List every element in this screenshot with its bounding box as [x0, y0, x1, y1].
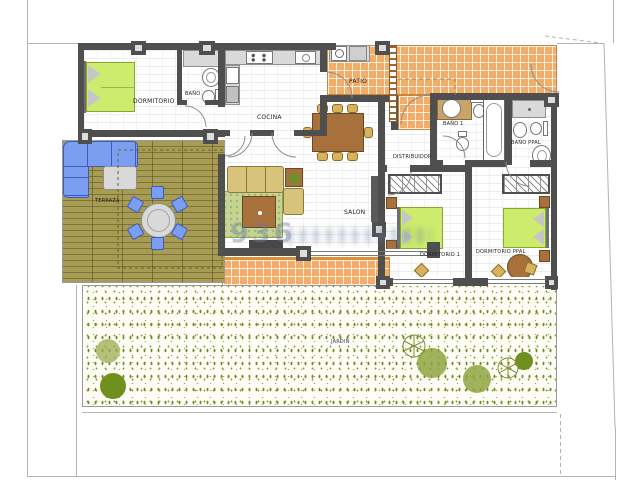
column: [545, 276, 558, 289]
wall: [465, 165, 472, 283]
wall: [205, 100, 223, 105]
room-label-distribuidor: DISTRIBUIDOR: [393, 154, 432, 161]
pergola-beam: [389, 45, 397, 122]
bush-icon: [463, 365, 491, 393]
double-bed: [503, 208, 546, 248]
side-table: [285, 168, 303, 187]
wall: [78, 43, 84, 137]
chair: [332, 104, 343, 113]
column: [376, 276, 390, 289]
wall: [430, 93, 557, 100]
wall: [218, 154, 225, 256]
wall: [453, 278, 488, 286]
appliance: [349, 46, 367, 61]
bidet-icon: [456, 137, 469, 151]
column: [544, 93, 559, 107]
room-label-dormitorio: DORMITORIO: [133, 98, 175, 105]
wall: [551, 95, 557, 290]
toilet-tank: [543, 121, 548, 136]
wall: [177, 48, 182, 104]
wall: [320, 95, 398, 102]
table-dot: [258, 211, 262, 215]
bush-icon: [515, 352, 533, 370]
wall: [385, 165, 387, 172]
bush-icon: [100, 373, 126, 399]
column: [203, 129, 218, 144]
wall: [505, 95, 512, 165]
room-label-banyo1: BAÑO 1: [443, 121, 464, 128]
plant-icon: [289, 173, 300, 184]
sink-icon: [442, 99, 461, 118]
patio-extension-tiles: [398, 95, 433, 130]
chair: [332, 152, 343, 161]
room-label-banyo: BAÑO: [185, 91, 200, 98]
bidet-icon: [513, 122, 527, 138]
chair: [151, 237, 164, 250]
bathtub-icon: [483, 99, 505, 161]
wall: [320, 43, 327, 72]
room-label-dormitorio-ppal: DORMITORIO PPAL: [476, 249, 525, 256]
wall: [225, 130, 230, 136]
sink-bowl: [206, 72, 216, 83]
nightstand: [539, 250, 550, 262]
wall: [218, 43, 225, 107]
pillow: [533, 211, 544, 227]
kitchen-sink: [295, 51, 316, 64]
watermark-text: 936: [230, 218, 295, 249]
bush-icon: [417, 348, 447, 378]
window-glazing: [488, 277, 546, 286]
nightstand: [386, 197, 397, 209]
column: [131, 41, 146, 55]
pillow: [402, 210, 413, 226]
pillow: [88, 89, 101, 107]
column: [199, 41, 215, 55]
kitchen-sink: [226, 67, 239, 84]
closet: [388, 174, 442, 194]
wall: [218, 130, 225, 136]
wall: [218, 248, 298, 256]
room-label-cocina: COCINA: [257, 114, 282, 121]
sink-bowl: [302, 54, 310, 62]
low-table: [103, 166, 137, 190]
corner-sofa: [63, 141, 138, 167]
stove-icon: [246, 51, 273, 64]
sofa: [227, 166, 284, 193]
room-label-salon: SALON: [344, 209, 365, 216]
wall: [410, 165, 470, 172]
room-label-dormitorio1: DORMITORIO 1: [420, 252, 460, 259]
watermark-smudge: [287, 228, 432, 243]
bed-headboard: [546, 208, 549, 248]
pillow: [88, 65, 101, 83]
drain-dot: [528, 108, 531, 111]
chair: [364, 127, 373, 138]
column: [78, 129, 92, 144]
window-glazing: [311, 249, 427, 257]
room-label-patio: PATIO: [349, 78, 367, 85]
window-glazing: [393, 277, 453, 286]
wall: [177, 100, 187, 105]
fridge-icon: [226, 86, 239, 103]
double-bed: [86, 62, 135, 112]
pillow: [533, 229, 544, 245]
wall: [320, 98, 327, 136]
armchair: [283, 188, 304, 215]
wall: [430, 95, 437, 162]
washer-door: [335, 49, 344, 58]
chair: [347, 152, 358, 161]
chair: [347, 104, 358, 113]
chair: [317, 152, 328, 161]
chair: [151, 186, 164, 199]
tub-inner: [486, 103, 502, 157]
toilet-icon: [530, 122, 542, 135]
floor-plan: DORMITORIO BAÑO COCINA PATIO BAÑO 1 BAÑO…: [0, 0, 640, 480]
column: [296, 246, 311, 261]
bush-icon: [96, 339, 120, 363]
room-label-terraza: TERRAZA: [95, 198, 120, 205]
wall: [250, 130, 274, 136]
closet: [502, 174, 550, 194]
bed-line: [101, 87, 135, 88]
room-label-banyo-ppal: BAÑO PPAL: [511, 140, 541, 147]
shower-tray: [512, 100, 546, 118]
table-inner: [147, 209, 170, 232]
nightstand: [539, 196, 550, 208]
room-label-jardin: JARDIN: [331, 339, 350, 346]
column: [375, 41, 390, 55]
wall: [378, 95, 385, 285]
